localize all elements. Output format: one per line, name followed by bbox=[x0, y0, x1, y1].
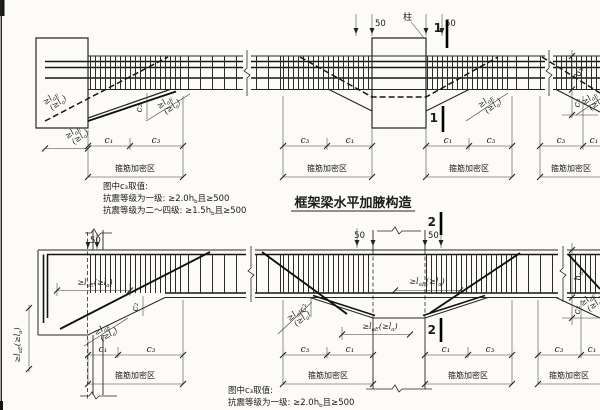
section-mark-2: 2 bbox=[428, 215, 436, 229]
anchor-label: ≥laE (≥la) bbox=[155, 91, 183, 119]
dim-label-c3: c₃ bbox=[147, 345, 156, 355]
zone-label: 箍筋加密区 bbox=[551, 163, 591, 173]
note-line: 抗震等级为一级: ≥2.0hb且≥500 bbox=[228, 397, 354, 409]
dim-label-c1: c₁ bbox=[346, 345, 355, 355]
drawing-sheet: 50 50 柱 1 1 bb c₂ c₂ bbox=[0, 0, 600, 410]
offset-label-50: 50 bbox=[90, 236, 101, 246]
dim-label-c1: c₁ bbox=[588, 345, 597, 355]
dim-label-c1: c₁ bbox=[444, 136, 453, 146]
anchor-label: ≥laE (≥la) bbox=[92, 318, 120, 346]
dim-label-c3: c₃ bbox=[152, 136, 161, 146]
dim-label-c1: c₁ bbox=[346, 136, 355, 146]
zone-label: 箍筋加密区 bbox=[307, 163, 347, 173]
zone-label: 箍筋加密区 bbox=[308, 370, 348, 380]
bottom-figure-elevation: 50 50 50 2 2 hb c₂ c₂ c₂ ≥laE(≥la) bbox=[13, 212, 600, 409]
dim-label-c3: c₃ bbox=[487, 136, 496, 146]
section-mark-2: 2 bbox=[428, 323, 436, 337]
top-left-c2-dim: c₂ bbox=[135, 93, 147, 119]
column-label: 柱 bbox=[403, 11, 412, 23]
zone-label: 箍筋加密区 bbox=[549, 370, 589, 380]
dim-label-c1: c₁ bbox=[442, 345, 451, 355]
dim-label-c3: c₃ bbox=[555, 345, 564, 355]
section-mark-1: 1 bbox=[430, 111, 438, 125]
figure-title: 框架梁水平加腋构造 bbox=[291, 195, 415, 211]
zone-label: 箍筋加密区 bbox=[449, 163, 489, 173]
anchorage-labels-top: ≥laE (≥la) ≥laE (≥la) ≥laE (≥la) ≥laE (≥… bbox=[41, 87, 600, 152]
depth-label-c2: c₂ bbox=[135, 103, 145, 112]
notes-bottom: 图中c₃取值: 抗震等级为一级: ≥2.0hb且≥500 bbox=[228, 385, 354, 409]
note-line: 图中c₃取值: bbox=[103, 181, 148, 192]
bottom-middle-column bbox=[366, 227, 432, 392]
offset-label-50: 50 bbox=[375, 19, 386, 29]
section-mark-1: 1 bbox=[434, 21, 442, 35]
anchor-label: ≥laE (≥la) bbox=[63, 121, 91, 149]
anchor-label: ≥laE(≥la) bbox=[362, 322, 397, 333]
zone-label: 箍筋加密区 bbox=[115, 163, 155, 173]
bottom-c2-dims: c₂ c₂ bbox=[131, 296, 311, 317]
bottom-dimension-rows: c₁ c₃ c₃ c₁ c₁ c₃ c₃ c₁ 箍筋加密区 箍筋加密区 箍筋加密… bbox=[85, 300, 600, 387]
structural-drawing: 50 50 柱 1 1 bb c₂ c₂ bbox=[0, 0, 600, 410]
zone-label: 箍筋加密区 bbox=[115, 370, 155, 380]
note-line: 抗震等级为一级: ≥2.0hb且≥500 bbox=[103, 193, 229, 205]
column-callout: 柱 bbox=[403, 11, 424, 38]
middle-column bbox=[372, 38, 426, 128]
top-figure-plan-view: 50 50 柱 1 1 bb c₂ c₂ bbox=[36, 11, 600, 217]
dim-label-c3: c₃ bbox=[557, 136, 566, 146]
dim-label-c3: c₃ bbox=[301, 345, 310, 355]
dim-label-c3: c₃ bbox=[486, 345, 495, 355]
zone-label: 箍筋加密区 bbox=[448, 370, 488, 380]
dim-label-c1: c₁ bbox=[105, 136, 114, 146]
width-label-bb: bb bbox=[574, 67, 585, 77]
dim-label-c3: c₃ bbox=[301, 136, 310, 146]
offset-label-50: 50 bbox=[354, 231, 365, 241]
dim-label-c1: c₁ bbox=[590, 136, 599, 146]
page-title: 框架梁水平加腋构造 bbox=[294, 195, 412, 211]
anchor-label: ≥laE(≥la) bbox=[13, 327, 24, 362]
note-line: 抗震等级为二～四级: ≥1.5hb且≥500 bbox=[103, 205, 246, 217]
offset-label-50: 50 bbox=[428, 231, 439, 241]
note-line: 图中c₃取值: bbox=[228, 385, 273, 396]
depth-label-c2: c₂ bbox=[573, 305, 583, 314]
depth-label-c2: c₂ bbox=[131, 302, 141, 311]
anchor-label: ≥laE (≥la) bbox=[476, 90, 504, 118]
notes-top: 图中c₃取值: 抗震等级为一级: ≥2.0hb且≥500 抗震等级为二～四级: … bbox=[103, 181, 246, 217]
left-column bbox=[36, 38, 88, 128]
dim-label-c1: c₁ bbox=[99, 345, 108, 355]
sheet-edge-marks bbox=[0, 0, 5, 410]
